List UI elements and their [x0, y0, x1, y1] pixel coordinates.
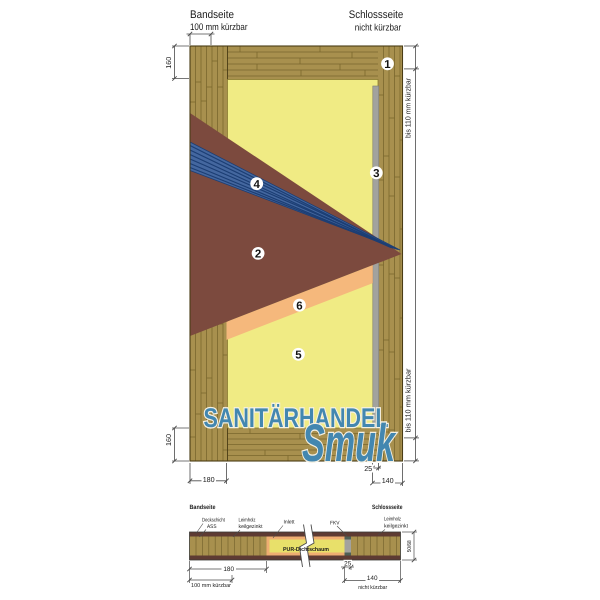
svg-text:4: 4: [253, 179, 260, 191]
svg-text:160: 160: [164, 434, 173, 446]
svg-text:180: 180: [223, 566, 234, 573]
svg-text:1: 1: [384, 59, 391, 71]
svg-text:nicht kürzbar: nicht kürzbar: [358, 584, 387, 591]
svg-text:Smuk: Smuk: [302, 414, 397, 473]
svg-text:25: 25: [344, 561, 352, 568]
svg-text:ASS: ASS: [207, 524, 217, 530]
svg-text:5: 5: [295, 349, 302, 361]
svg-text:Schlossseite: Schlossseite: [349, 9, 404, 21]
svg-text:Leimholz: Leimholz: [384, 517, 401, 523]
svg-text:bis 110 mm kürzbar: bis 110 mm kürzbar: [403, 368, 412, 433]
svg-text:PUR-Dichtschaum: PUR-Dichtschaum: [283, 546, 329, 553]
svg-text:100 mm kürzbar: 100 mm kürzbar: [191, 582, 231, 589]
svg-text:Inlett: Inlett: [284, 520, 296, 526]
svg-text:100 mm kürzbar: 100 mm kürzbar: [190, 22, 248, 33]
svg-text:keilgezinkt: keilgezinkt: [239, 524, 264, 530]
svg-text:Leimholz: Leimholz: [239, 518, 256, 524]
svg-text:50/68: 50/68: [406, 540, 413, 552]
svg-text:keilgezinkt: keilgezinkt: [384, 524, 409, 530]
svg-text:nicht kürzbar: nicht kürzbar: [355, 23, 402, 34]
svg-text:2: 2: [255, 249, 261, 261]
svg-text:Deckschicht: Deckschicht: [202, 518, 225, 524]
svg-text:FKV: FKV: [330, 521, 340, 527]
svg-text:Schlossseite: Schlossseite: [372, 504, 403, 511]
svg-text:Bandseite: Bandseite: [190, 9, 234, 21]
svg-text:6: 6: [296, 300, 302, 312]
svg-text:140: 140: [382, 476, 394, 485]
svg-text:3: 3: [373, 168, 379, 180]
svg-text:Bandseite: Bandseite: [190, 504, 216, 511]
svg-text:160: 160: [164, 57, 173, 69]
svg-text:140: 140: [367, 575, 378, 582]
svg-text:180: 180: [203, 475, 215, 484]
svg-text:bis 110 mm kürzbar: bis 110 mm kürzbar: [403, 78, 412, 138]
